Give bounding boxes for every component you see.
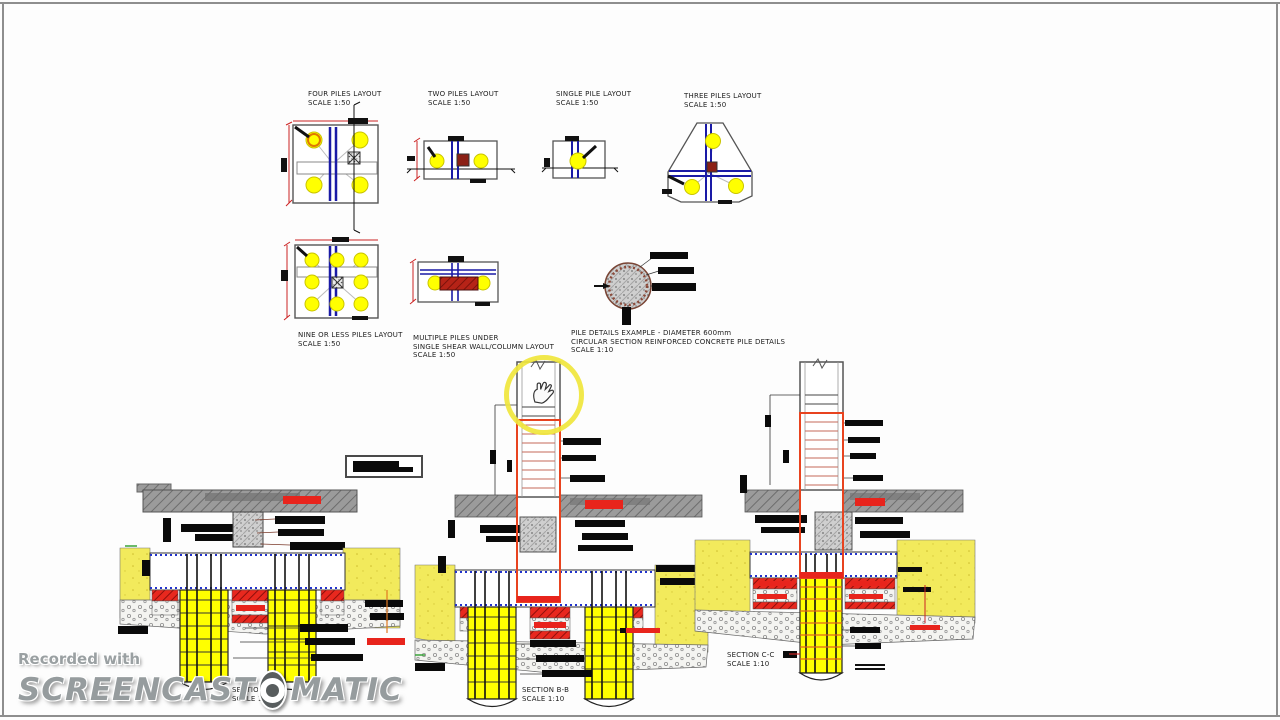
watermark-recorded-with: Recorded with [18,650,348,668]
nine-piles-layout-drawing [280,236,400,332]
watermark-brand: SCREENCAST MATIC [18,670,348,710]
label-nine-piles-layout: NINE OR LESS PILES LAYOUTSCALE 1:50 [298,331,403,348]
label-three-piles-layout: THREE PILES LAYOUTSCALE 1:50 [684,92,761,109]
watermark-screencast-text: SCREENCAST [18,672,255,708]
drawing-canvas[interactable]: FOUR PILES LAYOUTSCALE 1:50 TWO PILES LA… [0,0,1280,720]
label-single-pile-layout: SINGLE PILE LAYOUTSCALE 1:50 [556,90,631,107]
section-c-c-drawing [685,355,985,690]
frame-right-line [1276,2,1278,715]
frame-bottom-line [0,715,1280,717]
cursor-highlight-circle [504,355,584,435]
watermark-matic-text: MATIC [290,672,402,708]
label-section-c-c: SECTION C-CSCALE 1:10 [727,651,775,668]
frame-left-line [2,2,4,715]
pile-detail-circle-drawing [590,245,710,333]
logo-center-dot [260,678,285,703]
four-piles-layout-drawing [278,100,403,235]
screencast-o-matic-watermark: Recorded with SCREENCAST MATIC [18,650,348,712]
multiple-piles-wall-layout-drawing [405,246,517,318]
three-piles-layout-drawing [660,110,765,210]
label-section-b-b: SECTION B-BSCALE 1:10 [522,686,569,703]
single-pile-layout-drawing [540,128,620,192]
frame-top-line [0,2,1280,4]
screencast-o-matic-logo-icon [258,670,287,710]
label-two-piles-layout: TWO PILES LAYOUTSCALE 1:50 [428,90,499,107]
two-piles-layout-drawing [405,128,517,192]
